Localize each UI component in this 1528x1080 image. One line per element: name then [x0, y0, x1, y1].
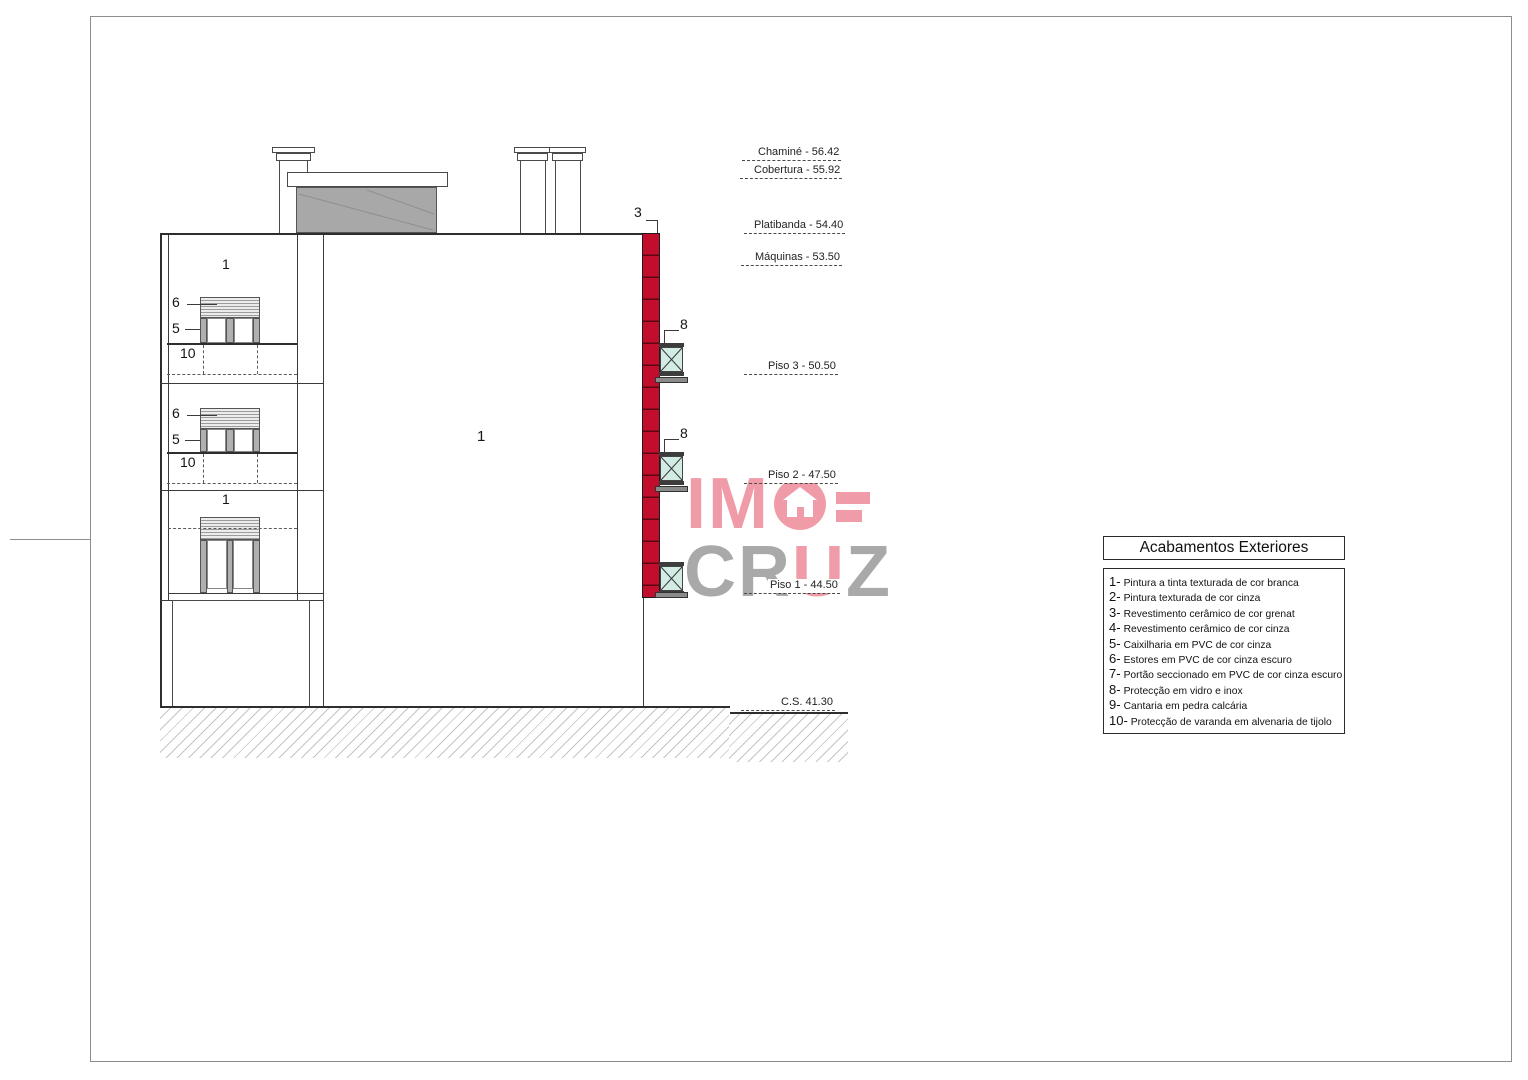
legend-item-text: Protecção em vidro e inox — [1124, 684, 1243, 699]
legend-item-number: 3- — [1109, 605, 1121, 620]
legend-title: Acabamentos Exteriores — [1140, 539, 1309, 556]
glass-panel — [660, 566, 683, 591]
window-pane — [207, 318, 226, 343]
callout-wall-1: 1 — [222, 492, 230, 506]
leader-line — [664, 330, 665, 344]
legend-item: 4- Revestimento cerâmico de cor cinza — [1109, 620, 1342, 635]
glass-frame-bottom — [659, 481, 684, 485]
legend-item: 8- Protecção em vidro e inox — [1109, 682, 1342, 697]
left-wall-edge — [160, 233, 162, 707]
leader-line — [185, 440, 200, 441]
window-sill — [655, 377, 688, 383]
legend-item: 6- Estores em PVC de cor cinza escuro — [1109, 651, 1342, 666]
glass-protection-floor1 — [659, 562, 684, 595]
level-cs: C.S. 41.30 — [741, 695, 835, 711]
level-label: Piso 1 - 44.50 — [768, 579, 840, 593]
leader-line — [664, 439, 665, 453]
door-pane — [233, 540, 253, 589]
door-jamb — [253, 540, 260, 593]
door-mullion — [227, 540, 233, 593]
window-jamb — [253, 318, 260, 343]
legend-item: 2- Pintura texturada de cor cinza — [1109, 589, 1342, 604]
door-pane — [207, 540, 227, 589]
legend-item-text: Pintura texturada de cor cinza — [1124, 591, 1261, 606]
ceramic-cladding-strip — [642, 233, 660, 598]
door-jamb — [200, 540, 207, 593]
hidden-balcony-base — [167, 374, 297, 375]
ground-line — [160, 706, 730, 708]
window-jamb — [200, 318, 207, 343]
window-mullion — [226, 318, 234, 343]
hidden-window-edge — [257, 345, 258, 374]
logo-equals-icon — [836, 482, 874, 534]
window-mullion — [226, 429, 234, 452]
window-pane — [234, 318, 253, 343]
level-label: C.S. 41.30 — [779, 696, 835, 710]
legend-item-number: 7- — [1109, 666, 1121, 681]
legend-item-number: 6- — [1109, 651, 1121, 666]
house-roof-shape — [783, 487, 817, 500]
fold-mark — [10, 539, 90, 540]
right-wall-lower-edge — [643, 598, 644, 707]
ground-hatch-right — [729, 714, 848, 762]
floor-slab-line — [160, 383, 323, 384]
level-piso2: Piso 2 - 47.50 — [744, 468, 838, 484]
level-maquinas: Máquinas - 53.50 — [741, 250, 842, 266]
legend-item: 1- Pintura a tinta texturada de cor bran… — [1109, 574, 1342, 589]
watermark-z: Z — [846, 542, 892, 602]
level-cobertura: Cobertura - 55.92 — [740, 163, 842, 179]
hidden-terrace-line — [168, 528, 297, 529]
window-jamb — [200, 429, 207, 452]
callout-ceramic-3: 3 — [634, 205, 642, 219]
architectural-elevation-sheet: { "callouts": { "wall_white": "1", "cera… — [0, 0, 1528, 1080]
roof-parapet-line — [160, 233, 660, 235]
level-piso3: Piso 3 - 50.50 — [744, 359, 838, 375]
callout-parapet-10: 10 — [180, 346, 196, 360]
level-label: Máquinas - 53.50 — [753, 251, 842, 265]
ground-hatch — [160, 708, 730, 758]
legend-item-text: Portão seccionado em PVC de cor cinza es… — [1124, 668, 1343, 683]
legend-item: 3- Revestimento cerâmico de cor grenat — [1109, 605, 1342, 620]
level-label: Platibanda - 54.40 — [752, 219, 845, 233]
glass-protection-floor2 — [659, 452, 684, 485]
legend-item-number: 2- — [1109, 589, 1121, 604]
legend-item-text: Caixilharia em PVC de cor cinza — [1124, 638, 1272, 653]
legend-item-text: Cantaria em pedra calcária — [1124, 699, 1248, 714]
chimney-right1-shaft — [520, 160, 546, 234]
legend-item: 5- Caixilharia em PVC de cor cinza — [1109, 636, 1342, 651]
window-sill — [655, 592, 688, 598]
house-door-shape — [797, 507, 804, 517]
level-label: Cobertura - 55.92 — [752, 164, 842, 178]
level-platibanda: Platibanda - 54.40 — [744, 218, 845, 234]
shutter-box-floor3 — [200, 297, 260, 318]
hidden-window-edge — [203, 454, 204, 483]
level-label: Piso 3 - 50.50 — [766, 360, 838, 374]
legend-item-text: Revestimento cerâmico de cor grenat — [1124, 607, 1295, 622]
legend-item-text: Pintura a tinta texturada de cor branca — [1124, 576, 1299, 591]
leader-line — [187, 304, 217, 305]
hidden-window-edge — [203, 345, 204, 374]
callout-shutter-6: 6 — [172, 406, 180, 420]
callout-wall-1-main: 1 — [477, 430, 485, 444]
level-label: Chaminé - 56.42 — [756, 146, 841, 160]
legend-item: 7- Portão seccionado em PVC de cor cinza… — [1109, 666, 1342, 681]
floor-slab-line — [160, 490, 323, 491]
legend-title-box: Acabamentos Exteriores — [1103, 536, 1345, 560]
legend-item-number: 8- — [1109, 682, 1121, 697]
logo-house-icon — [774, 478, 826, 530]
callout-wall-1: 1 — [222, 257, 230, 271]
legend-item-text: Revestimento cerâmico de cor cinza — [1124, 622, 1290, 637]
callout-glass-8: 8 — [680, 317, 688, 331]
window-sill — [655, 486, 688, 492]
legend-item-number: 1- — [1109, 574, 1121, 589]
level-label: Piso 2 - 47.50 — [766, 469, 838, 483]
legend-items-box: 1- Pintura a tinta texturada de cor bran… — [1103, 568, 1345, 734]
callout-shutter-6: 6 — [172, 295, 180, 309]
machine-room-body — [296, 187, 437, 233]
callout-parapet-10: 10 — [180, 455, 196, 469]
leader-line — [664, 439, 679, 440]
glass-panel — [660, 347, 683, 372]
section-bottom-line — [168, 593, 323, 594]
hidden-balcony-base — [167, 483, 297, 484]
legend-item-number: 9- — [1109, 697, 1121, 712]
wall-pier-line — [323, 233, 324, 707]
level-piso1: Piso 1 - 44.50 — [744, 578, 840, 594]
glass-protection-floor3 — [659, 343, 684, 376]
callout-frame-5: 5 — [172, 432, 180, 446]
callout-frame-5: 5 — [172, 321, 180, 335]
leader-line — [664, 330, 679, 331]
leader-line — [657, 220, 658, 234]
left-wall-inner-line — [168, 233, 169, 601]
legend-item-number: 10- — [1109, 713, 1128, 728]
window-pane — [234, 429, 253, 452]
hidden-window-edge — [257, 454, 258, 483]
glass-panel — [660, 456, 683, 481]
machine-room-cap — [287, 172, 448, 187]
legend-item-text: Estores em PVC de cor cinza escuro — [1124, 653, 1292, 668]
leader-line — [185, 329, 200, 330]
callout-glass-8: 8 — [680, 426, 688, 440]
glass-frame-bottom — [659, 372, 684, 376]
chimney-right2-shaft — [555, 160, 581, 234]
legend-item: 9- Cantaria em pedra calcária — [1109, 697, 1342, 712]
level-chamine: Chaminé - 56.42 — [742, 145, 841, 161]
window-pane — [207, 429, 226, 452]
legend-item-number: 4- — [1109, 620, 1121, 635]
leader-line — [187, 415, 217, 416]
machine-room-hatch — [297, 188, 436, 232]
foundation-box — [172, 600, 310, 707]
legend-item-number: 5- — [1109, 636, 1121, 651]
legend-item: 10- Protecção de varanda em alvenaria de… — [1109, 713, 1342, 728]
balcony-section-right-line — [297, 233, 298, 601]
window-jamb — [253, 429, 260, 452]
legend-item-text: Protecção de varanda em alvenaria de tij… — [1131, 715, 1332, 730]
shutter-box-floor2 — [200, 408, 260, 429]
